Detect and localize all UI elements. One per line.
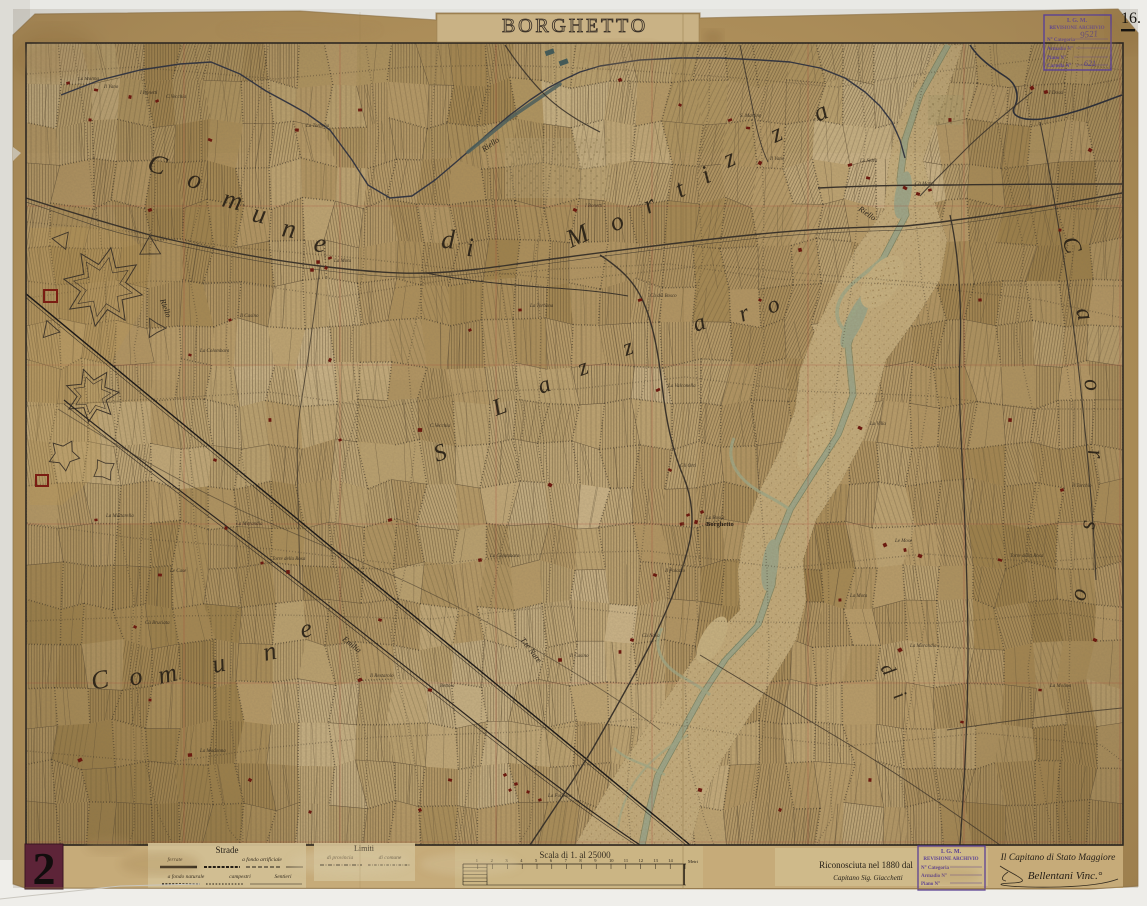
svg-text:La Mattarella: La Mattarella: [105, 514, 134, 519]
svg-text:I Bonetti: I Bonetti: [584, 204, 603, 209]
svg-text:Le Mose: Le Mose: [894, 539, 913, 544]
svg-text:10: 10: [609, 858, 614, 863]
svg-text:Strade: Strade: [216, 845, 239, 855]
svg-text:Metri: Metri: [688, 859, 699, 864]
svg-text:16.: 16.: [1121, 10, 1141, 27]
svg-text:13: 13: [653, 858, 658, 863]
svg-text:Il Vano: Il Vano: [103, 85, 119, 90]
svg-text:Cà Bruciata: Cà Bruciata: [145, 621, 170, 626]
svg-text:La Mota: La Mota: [333, 259, 352, 264]
svg-text:Cà del Bosco: Cà del Bosco: [650, 294, 677, 299]
svg-text:Cartella N°: Cartella N°: [1047, 64, 1071, 69]
svg-text:La Torbona: La Torbona: [529, 304, 554, 309]
svg-text:Il Casino: Il Casino: [569, 654, 589, 659]
svg-text:2: 2: [33, 843, 56, 894]
svg-text:Il Vano: Il Vano: [769, 157, 785, 162]
svg-text:La Morandia: La Morandia: [909, 644, 937, 649]
svg-text:Torre della Rosa: Torre della Rosa: [1010, 554, 1044, 559]
svg-text:Bettola: Bettola: [440, 684, 455, 689]
svg-text:I Bonetti: I Bonetti: [139, 91, 158, 96]
svg-text:12: 12: [639, 858, 644, 863]
svg-text:La Morandia: La Morandia: [235, 522, 263, 527]
svg-text:i: i: [466, 232, 475, 262]
svg-text:Il Casino: Il Casino: [239, 314, 259, 319]
svg-text:La Villa: La Villa: [869, 422, 886, 427]
svg-text:Piano N°: Piano N°: [921, 882, 940, 887]
svg-text:La Valconella: La Valconella: [667, 384, 696, 389]
svg-text:Riconosciuta nel 1880 dal: Riconosciuta nel 1880 dal: [819, 860, 913, 870]
svg-text:Il Palazzo: Il Palazzo: [664, 569, 686, 574]
svg-text:campestri: campestri: [229, 874, 251, 880]
svg-text:La Molina: La Molina: [77, 77, 99, 82]
svg-text:BORGHETTO: BORGHETTO: [502, 15, 648, 37]
svg-text:a fondo artificiale: a fondo artificiale: [242, 856, 282, 863]
svg-text:I Dossi: I Dossi: [1048, 91, 1064, 96]
svg-text:Cà Matta: Cà Matta: [915, 182, 935, 187]
svg-text:Il Capitano di Stato Maggiore: Il Capitano di Stato Maggiore: [1000, 853, 1116, 863]
svg-text:C.Vecchia: C.Vecchia: [430, 424, 451, 429]
svg-text:REVISIONE ARCHIVIO: REVISIONE ARCHIVIO: [923, 857, 978, 862]
svg-text:La Selva: La Selva: [859, 159, 878, 164]
svg-text:Capitano Sig. Giacchetti: Capitano Sig. Giacchetti: [833, 874, 902, 882]
svg-text:Il Restarolo: Il Restarolo: [369, 674, 394, 679]
svg-text:Borghetto: Borghetto: [706, 521, 734, 528]
svg-text:d: d: [441, 224, 456, 254]
svg-text:La Colombara: La Colombara: [489, 554, 520, 559]
svg-text:11: 11: [624, 858, 628, 863]
svg-text:Torre della Rosa: Torre della Rosa: [272, 557, 306, 562]
svg-text:Il Torchio: Il Torchio: [1071, 484, 1092, 489]
svg-text:La Colombara: La Colombara: [199, 349, 230, 354]
svg-text:La Torbona: La Torbona: [305, 124, 330, 129]
svg-text:Sentieri: Sentieri: [274, 874, 292, 880]
svg-text:Bellentani Vinc.°: Bellentani Vinc.°: [1028, 870, 1103, 882]
svg-text:La Molina: La Molina: [1049, 684, 1071, 689]
svg-text:C.Vecchia: C.Vecchia: [166, 95, 187, 100]
svg-text:La Fornace: La Fornace: [547, 794, 572, 799]
svg-text:La Madonna: La Madonna: [199, 749, 226, 754]
svg-text:La Mota: La Mota: [849, 594, 868, 599]
svg-text:14: 14: [668, 858, 673, 863]
svg-text:La Rossa: La Rossa: [705, 516, 725, 521]
svg-text:I. G. M.: I. G. M.: [941, 849, 962, 855]
svg-text:S. Martino: S. Martino: [740, 114, 762, 119]
svg-text:Cà Nova: Cà Nova: [642, 634, 660, 639]
svg-text:Le Case: Le Case: [169, 569, 187, 574]
